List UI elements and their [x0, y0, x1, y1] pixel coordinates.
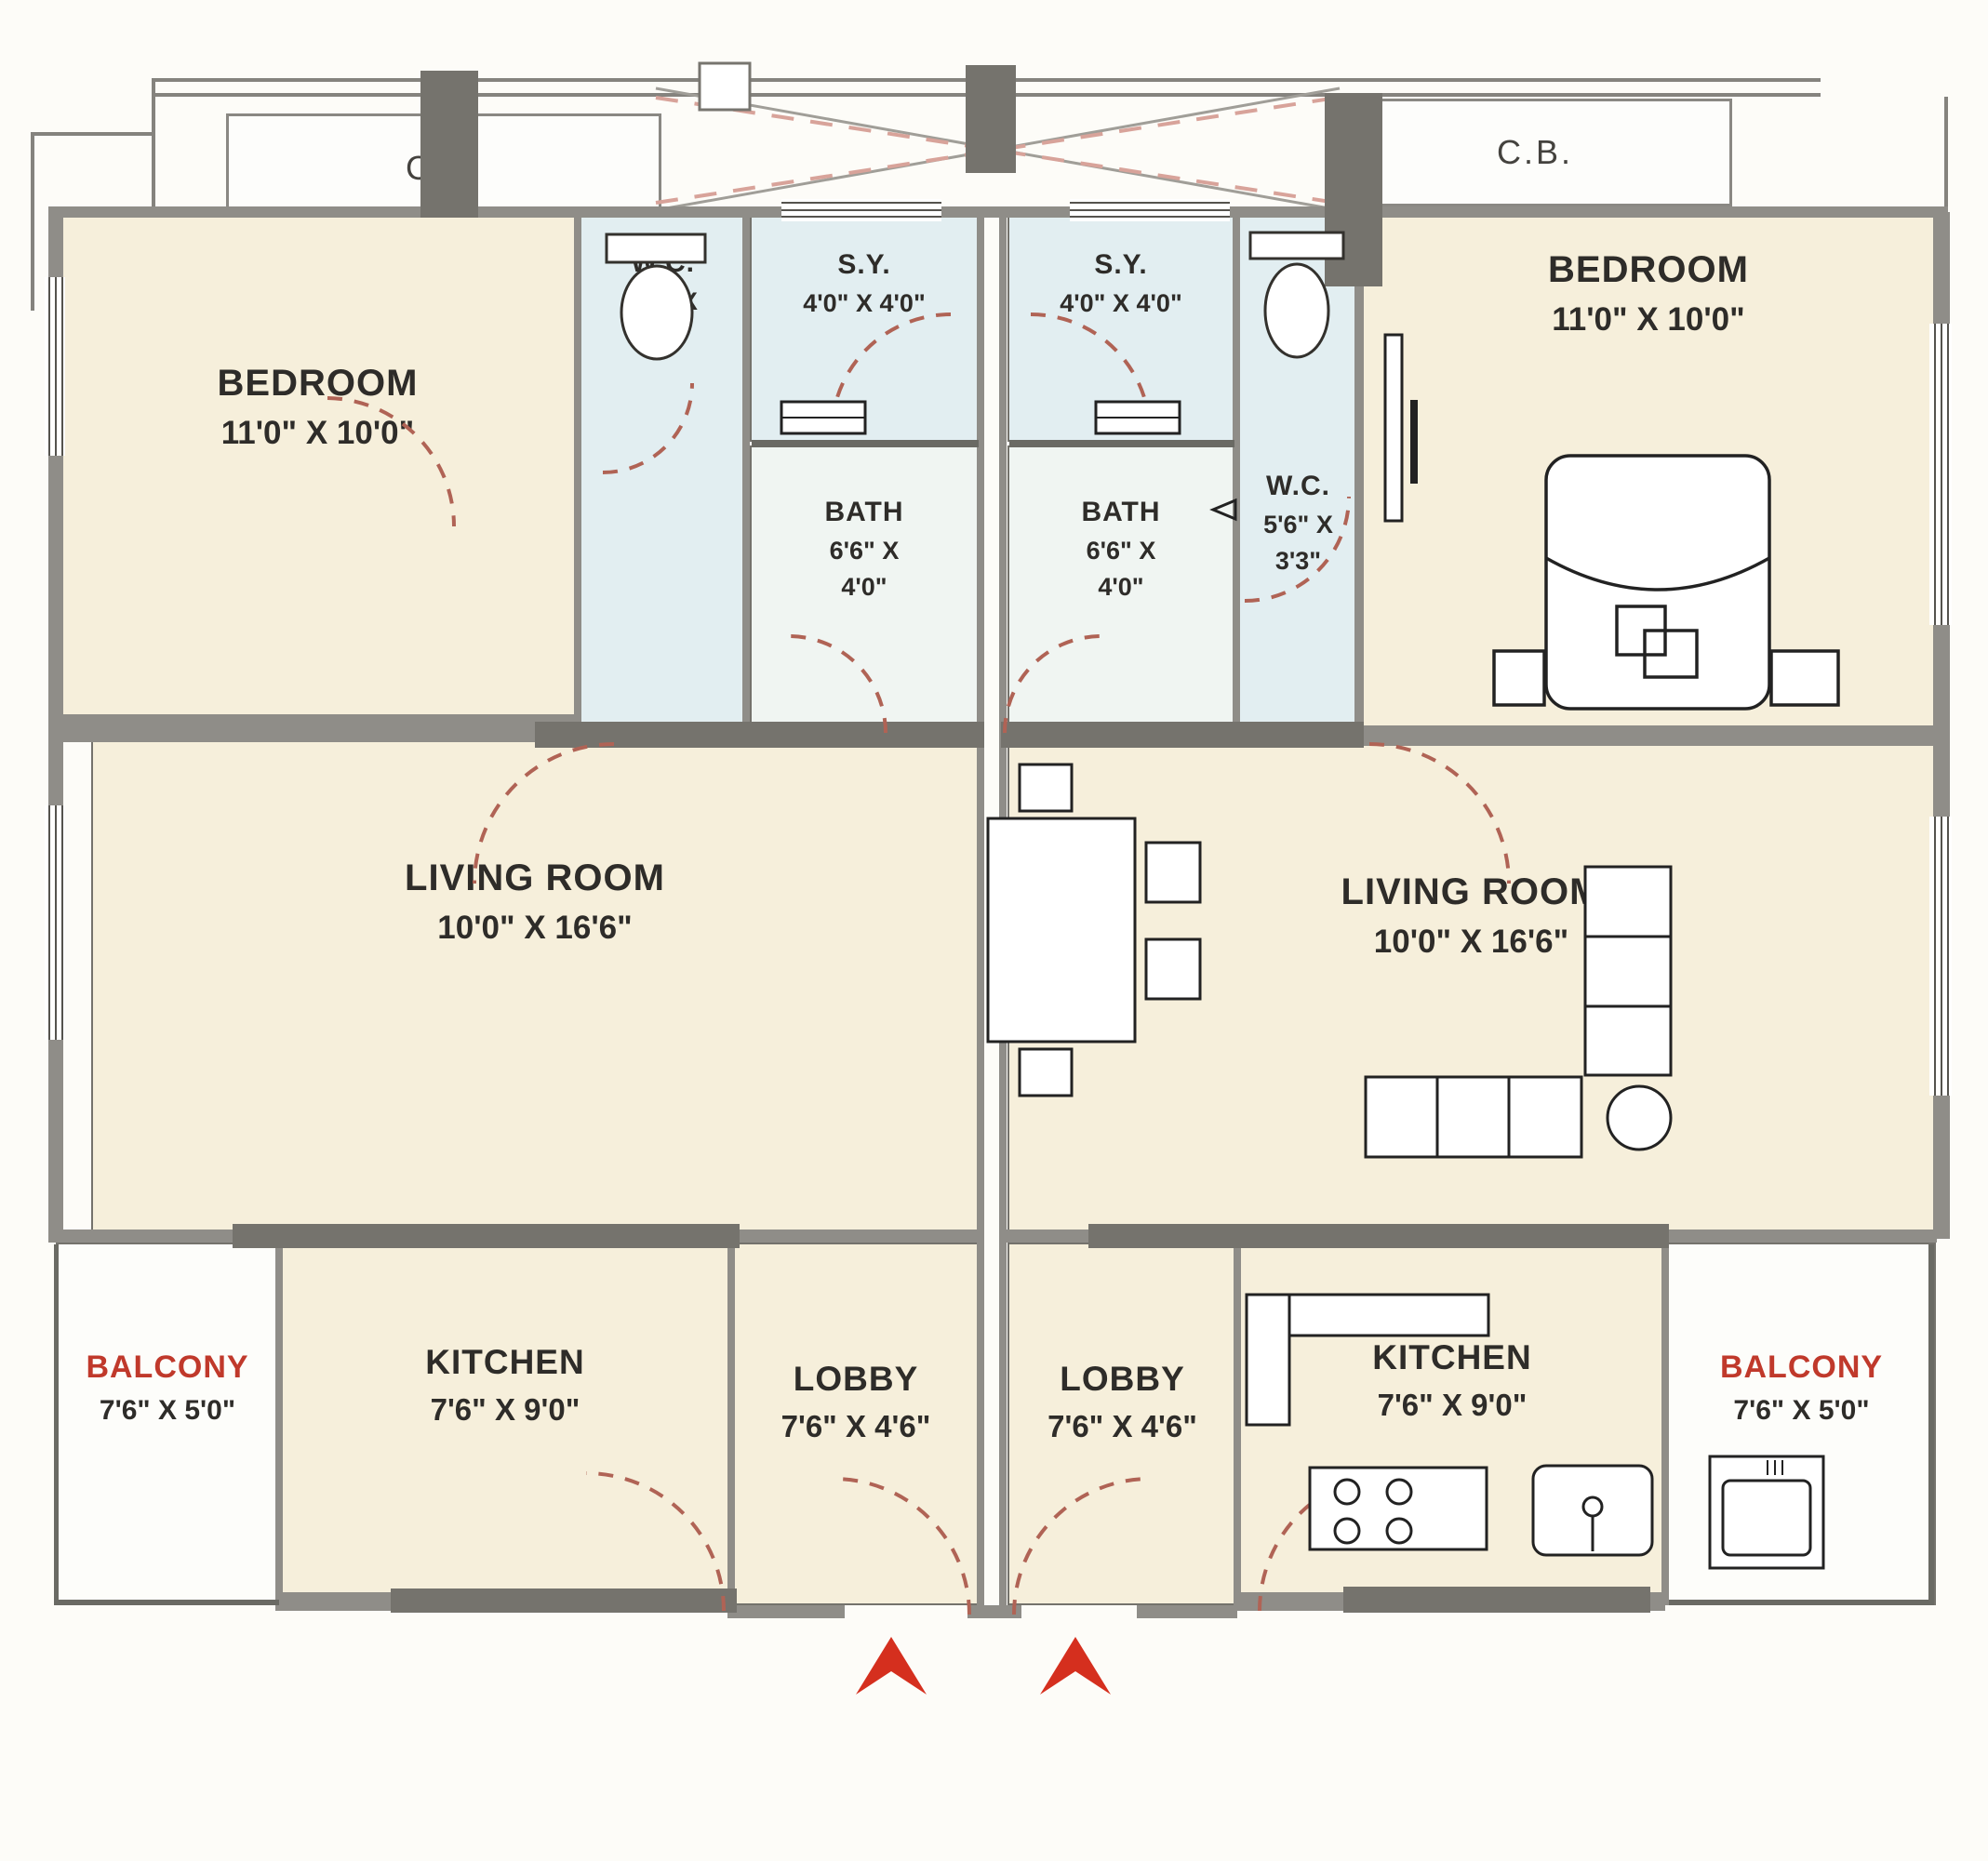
bath-left-name: BATH	[824, 492, 903, 533]
lobby-right-name: LOBBY	[1060, 1354, 1185, 1404]
lobby-right-dims: 7'6" X 4'6"	[1047, 1404, 1197, 1449]
room-bath-left: BATH 6'6" X 4'0"	[752, 447, 977, 733]
room-bedroom-left: BEDROOM 11'0" X 10'0"	[60, 217, 575, 730]
floor-plan-canvas: C.B. C.B. BEDROOM 11'0" X 10'0" W.C. 5'6…	[0, 0, 1988, 1861]
room-lobby-right: LOBBY 7'6" X 4'6"	[1009, 1244, 1235, 1603]
balcony-right-dims: 7'6" X 5'0"	[1733, 1390, 1869, 1431]
sy-right-name: S.Y.	[1094, 245, 1147, 286]
cb-left-label: C.B.	[406, 149, 482, 188]
living-left-name: LIVING ROOM	[405, 851, 665, 905]
room-balcony-right: BALCONY 7'6" X 5'0"	[1669, 1244, 1934, 1603]
bedroom-left-name: BEDROOM	[218, 356, 419, 410]
room-living-left: LIVING ROOM 10'0" X 16'6"	[93, 739, 977, 1230]
balcony-left-name: BALCONY	[86, 1345, 248, 1390]
entry-arrow-right	[1040, 1637, 1111, 1695]
wc-left-dims1: 5'6" X	[628, 284, 698, 320]
cb-right-label: C.B.	[1497, 133, 1573, 172]
wc-left-name: W.C.	[631, 243, 695, 284]
terrace-cross-lines	[656, 88, 1340, 210]
balcony-right-name: BALCONY	[1720, 1345, 1883, 1390]
room-kitchen-right: KITCHEN 7'6" X 9'0"	[1239, 1244, 1665, 1603]
bath-right-dims1: 6'6" X	[1087, 533, 1156, 569]
wc-right-dims1: 5'6" X	[1263, 507, 1333, 543]
bath-left-dims2: 4'0"	[841, 569, 887, 605]
bedroom-right-name: BEDROOM	[1548, 243, 1749, 297]
living-right-label: LIVING ROOM 10'0" X 16'6"	[1341, 865, 1602, 966]
living-left-label: LIVING ROOM 10'0" X 16'6"	[405, 851, 665, 952]
kitchen-right-label: KITCHEN 7'6" X 9'0"	[1372, 1333, 1531, 1427]
living-left-dims: 10'0" X 16'6"	[437, 905, 632, 952]
bedroom-right-dims: 11'0" X 10'0"	[1552, 297, 1745, 344]
wc-left-dims2: 3'3"	[640, 320, 686, 356]
bath-right-label: BATH 6'6" X 4'0"	[1081, 492, 1160, 605]
bath-left-label: BATH 6'6" X 4'0"	[824, 492, 903, 605]
wc-right-name: W.C.	[1266, 466, 1330, 507]
kitchen-left-dims: 7'6" X 9'0"	[431, 1388, 580, 1432]
kitchen-left-label: KITCHEN 7'6" X 9'0"	[425, 1337, 584, 1431]
lobby-right-label: LOBBY 7'6" X 4'6"	[1047, 1354, 1197, 1448]
wc-left-label: W.C. 5'6" X 3'3"	[628, 243, 698, 356]
bedroom-left-label: BEDROOM 11'0" X 10'0"	[218, 356, 419, 458]
wc-right-dims2: 3'3"	[1275, 543, 1321, 579]
room-sy-right: S.Y. 4'0" X 4'0"	[1009, 217, 1233, 440]
living-right-dims: 10'0" X 16'6"	[1374, 919, 1568, 966]
room-living-right: LIVING ROOM 10'0" X 16'6"	[1009, 739, 1933, 1230]
sy-right-label: S.Y. 4'0" X 4'0"	[1060, 245, 1182, 322]
room-sy-left: S.Y. 4'0" X 4'0"	[752, 217, 977, 440]
bedroom-right-label: BEDROOM 11'0" X 10'0"	[1548, 243, 1749, 344]
top-notch	[700, 63, 750, 110]
sy-left-label: S.Y. 4'0" X 4'0"	[803, 245, 926, 322]
cupboard-box-left: C.B.	[226, 113, 661, 223]
room-bedroom-right: BEDROOM 11'0" X 10'0"	[1364, 217, 1933, 730]
sy-left-dims: 4'0" X 4'0"	[803, 286, 926, 322]
balcony-left-dims: 7'6" X 5'0"	[100, 1390, 235, 1431]
lobby-left-dims: 7'6" X 4'6"	[781, 1404, 931, 1449]
wc-right-label: W.C. 5'6" X 3'3"	[1263, 466, 1333, 579]
dashed-chajja-lines	[656, 98, 1337, 203]
balcony-right-label: BALCONY 7'6" X 5'0"	[1720, 1345, 1883, 1431]
room-lobby-left: LOBBY 7'6" X 4'6"	[733, 1244, 979, 1603]
bath-right-name: BATH	[1081, 492, 1160, 533]
living-right-name: LIVING ROOM	[1341, 865, 1602, 919]
window-living-left-wall	[45, 805, 65, 1040]
room-balcony-left: BALCONY 7'6" X 5'0"	[58, 1244, 277, 1603]
room-wc-left: W.C. 5'6" X 3'3"	[581, 217, 744, 733]
bath-left-dims1: 6'6" X	[830, 533, 900, 569]
balcony-left-label: BALCONY 7'6" X 5'0"	[86, 1345, 248, 1431]
lobby-left-name: LOBBY	[794, 1354, 919, 1404]
cupboard-box-right: C.B.	[1338, 99, 1732, 206]
bedroom-left-dims: 11'0" X 10'0"	[221, 410, 415, 458]
entry-arrows	[856, 1637, 1111, 1695]
lobby-left-label: LOBBY 7'6" X 4'6"	[781, 1354, 931, 1448]
kitchen-right-dims: 7'6" X 9'0"	[1378, 1383, 1528, 1428]
kitchen-right-name: KITCHEN	[1372, 1333, 1531, 1383]
sy-right-dims: 4'0" X 4'0"	[1060, 286, 1182, 322]
room-wc-right: W.C. 5'6" X 3'3"	[1240, 217, 1356, 733]
entry-arrow-left	[856, 1637, 927, 1695]
kitchen-left-name: KITCHEN	[425, 1337, 584, 1388]
sy-left-name: S.Y.	[837, 245, 890, 286]
room-kitchen-left: KITCHEN 7'6" X 9'0"	[281, 1244, 729, 1603]
room-bath-right: BATH 6'6" X 4'0"	[1009, 447, 1233, 733]
bath-right-dims2: 4'0"	[1098, 569, 1143, 605]
